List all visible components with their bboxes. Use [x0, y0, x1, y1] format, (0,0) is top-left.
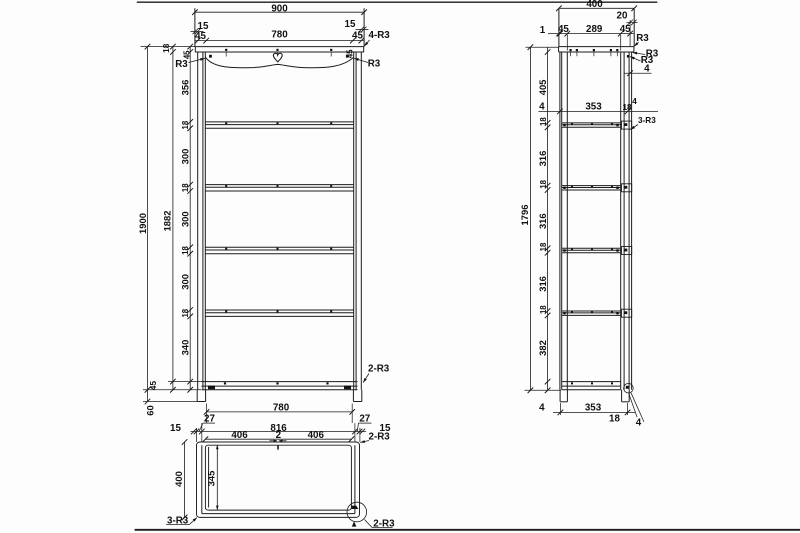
svg-text:45: 45: [352, 31, 363, 42]
svg-text:4: 4: [539, 402, 545, 413]
svg-text:406: 406: [231, 430, 248, 441]
svg-text:400: 400: [586, 0, 603, 10]
svg-text:18: 18: [181, 246, 190, 255]
svg-text:289: 289: [586, 24, 603, 35]
svg-text:4-R3: 4-R3: [369, 30, 391, 41]
svg-text:45: 45: [149, 381, 158, 391]
svg-text:300: 300: [179, 149, 190, 165]
svg-text:18: 18: [609, 414, 620, 425]
svg-text:1796: 1796: [519, 205, 530, 226]
svg-text:1882: 1882: [162, 211, 173, 232]
svg-text:15: 15: [170, 423, 181, 434]
svg-text:18: 18: [181, 120, 190, 129]
svg-text:4: 4: [636, 418, 642, 429]
svg-text:400: 400: [173, 471, 184, 487]
svg-text:2: 2: [276, 430, 282, 441]
svg-text:900: 900: [271, 4, 288, 15]
svg-text:316: 316: [537, 213, 548, 229]
svg-text:780: 780: [273, 402, 290, 413]
svg-text:R3: R3: [175, 59, 188, 70]
svg-text:345: 345: [205, 471, 216, 487]
svg-text:18: 18: [181, 183, 190, 192]
svg-text:2-R3: 2-R3: [368, 364, 390, 375]
svg-text:15: 15: [345, 19, 356, 30]
svg-text:18: 18: [622, 103, 632, 112]
svg-text:382: 382: [537, 340, 548, 356]
svg-text:406: 406: [308, 430, 325, 441]
svg-text:18: 18: [539, 305, 548, 314]
svg-text:3-R3: 3-R3: [638, 116, 656, 125]
svg-text:316: 316: [537, 151, 548, 167]
svg-text:340: 340: [179, 340, 190, 356]
svg-text:20: 20: [617, 11, 628, 22]
svg-text:356: 356: [179, 80, 190, 96]
svg-text:45: 45: [620, 24, 631, 35]
svg-text:316: 316: [537, 276, 548, 292]
svg-text:45: 45: [346, 49, 355, 58]
svg-text:4: 4: [539, 102, 545, 113]
svg-text:18: 18: [539, 242, 548, 251]
svg-text:300: 300: [179, 274, 190, 290]
svg-text:18: 18: [539, 179, 548, 188]
svg-text:353: 353: [585, 102, 602, 113]
svg-text:45: 45: [558, 24, 569, 35]
svg-text:18: 18: [539, 117, 548, 126]
svg-text:1: 1: [540, 25, 546, 36]
svg-text:2-R3: 2-R3: [369, 431, 391, 442]
svg-text:18: 18: [181, 308, 190, 317]
svg-text:780: 780: [271, 30, 288, 41]
svg-text:300: 300: [179, 211, 190, 227]
svg-text:4: 4: [632, 97, 637, 106]
svg-text:R3: R3: [368, 59, 381, 70]
svg-text:353: 353: [585, 402, 602, 413]
svg-text:1900: 1900: [137, 213, 148, 234]
svg-text:60: 60: [144, 405, 155, 415]
svg-text:45: 45: [195, 31, 206, 42]
svg-text:405: 405: [537, 80, 548, 96]
svg-text:18: 18: [162, 43, 171, 53]
